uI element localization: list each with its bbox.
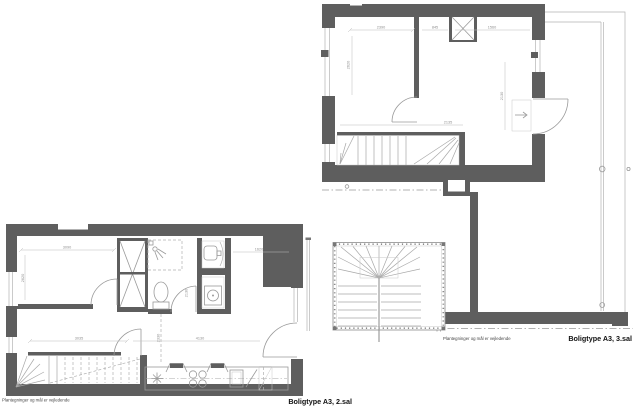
bathroom-door (171, 286, 196, 312)
bedroom-door (91, 279, 117, 305)
dim-label: 2620 (347, 61, 351, 69)
entry-door-3sal (512, 98, 568, 134)
dim-label: 4130 (196, 337, 204, 341)
partition-wall (414, 17, 419, 98)
dimensions-3sal: 2390 845 1560 2620 2130 2135 (340, 26, 530, 130)
dim-label: 2130 (185, 289, 189, 297)
window-right (531, 40, 545, 72)
walls-3sal (322, 4, 545, 182)
window-left-lower (321, 144, 335, 162)
wall-cabinet-icon (166, 364, 187, 373)
plan-2sal: 3090 2620 1620 2130 3035 4130 2330 (5, 223, 304, 396)
disclaimer-2sal: Plantegninger og mål er vejledende (2, 398, 70, 403)
disclaimer-3sal: Plantegninger og mål er vejledende (443, 336, 511, 341)
shower-icon (148, 240, 182, 270)
dim-label: 2390 (377, 26, 385, 30)
dim-label: 3090 (63, 246, 71, 250)
sink-icon (202, 241, 224, 268)
stairwell-common (306, 238, 446, 343)
wardrobe-shaft-icon (117, 241, 148, 307)
dim-label: 2620 (21, 274, 25, 282)
window-left-upper (321, 28, 335, 96)
bathroom (148, 240, 224, 312)
stair-door (114, 329, 141, 356)
terrace-outer-edge (545, 12, 625, 312)
dim-label: 1620 (255, 248, 263, 252)
stair-3sal (337, 136, 459, 166)
dim-label: 2130 (500, 92, 504, 100)
stair-edge (28, 352, 121, 356)
parapet (443, 312, 628, 324)
interior-door-3sal (392, 97, 417, 122)
dim-label: 2330 (157, 334, 161, 342)
washer-icon (202, 277, 224, 308)
dim-label: 1560 (488, 26, 496, 30)
bedroom-wall (17, 304, 93, 309)
stair-2sal (16, 356, 140, 387)
toilet-icon (153, 282, 169, 309)
terrace-wall (470, 192, 478, 312)
window-left-upper (5, 272, 18, 306)
window-right (290, 288, 304, 322)
lamp-star-icon (152, 373, 164, 385)
dim-label: 2135 (444, 121, 452, 125)
living-door (263, 322, 304, 359)
caption-3sal: Boligtype A3, 3.sal (568, 334, 632, 343)
dim-label: 3035 (75, 337, 83, 341)
dim-label: 845 (432, 26, 438, 30)
vent-shaft-icon (452, 17, 474, 40)
stair-edge (337, 132, 459, 136)
plan-3sal: 2390 845 1560 2620 2130 2135 (321, 0, 568, 182)
floor-plan-canvas: 2390 845 1560 2620 2130 2135 (0, 0, 640, 407)
roof-notch (58, 223, 88, 230)
roof-notch (350, 0, 362, 6)
wall-cabinet-icon (207, 364, 228, 373)
caption-2sal: Boligtype A3, 2.sal (288, 397, 352, 406)
window-left-lower (5, 337, 18, 353)
